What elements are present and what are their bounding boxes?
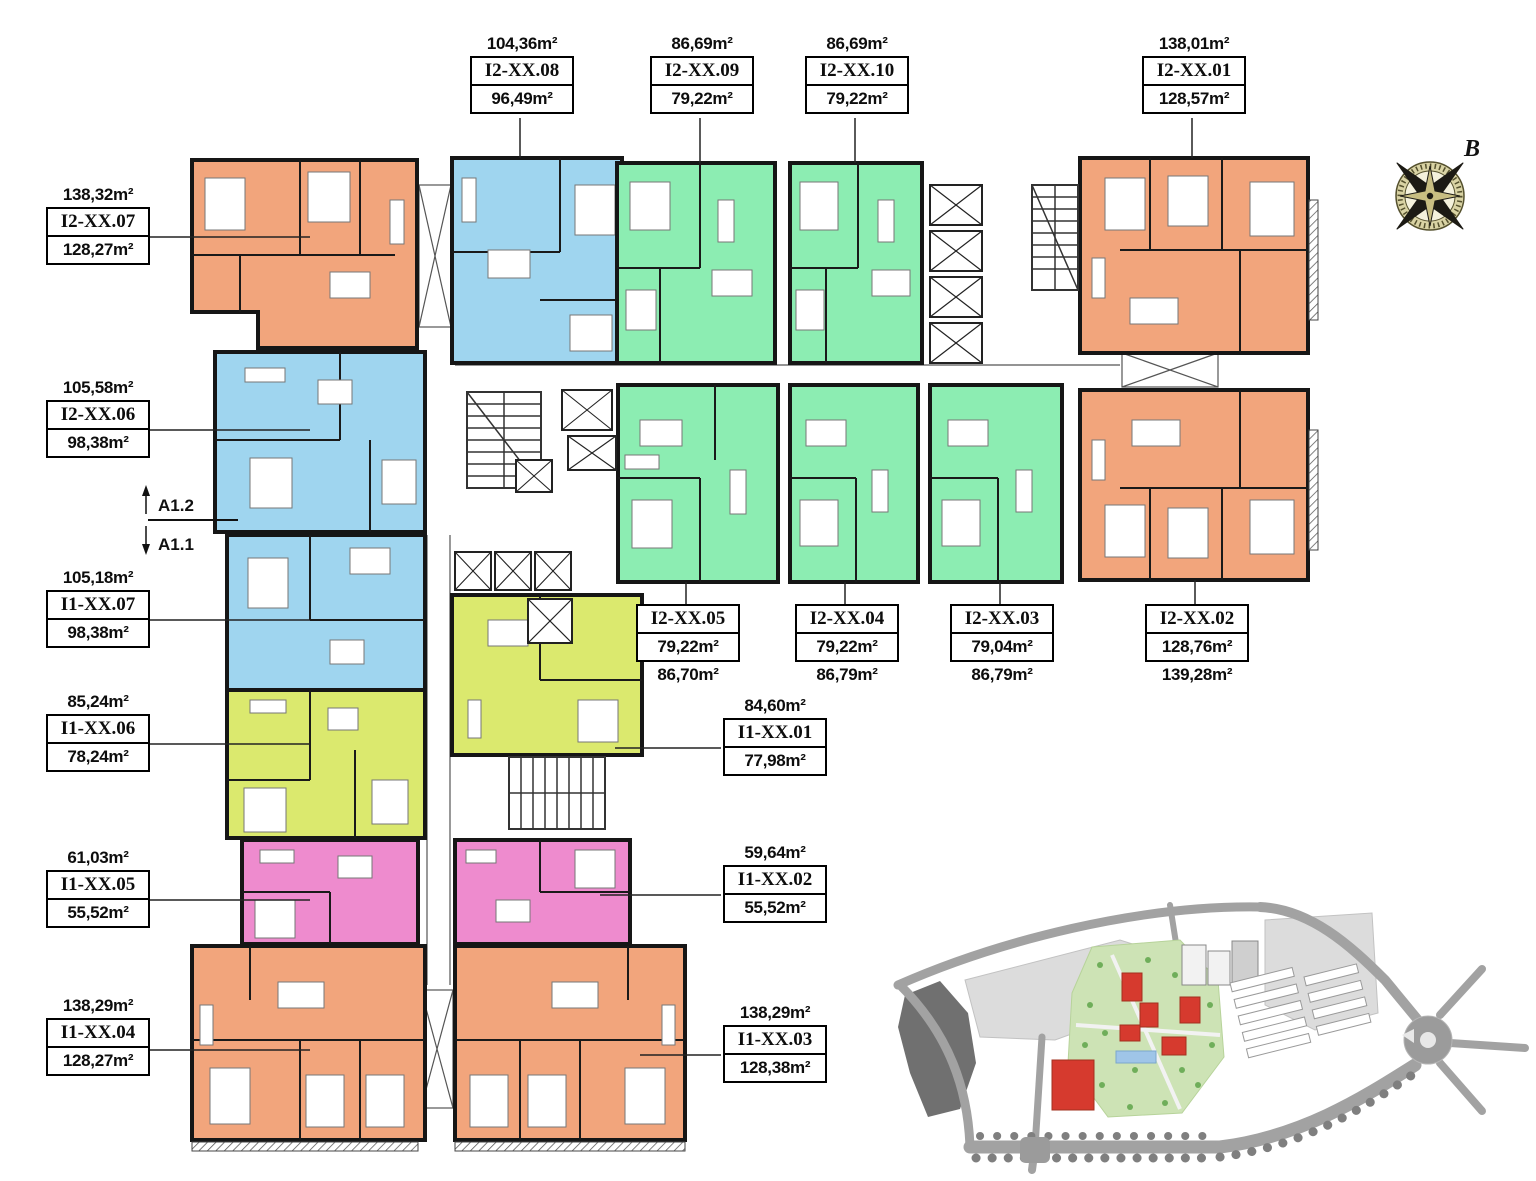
unit-area-net: 79,04m² — [952, 634, 1052, 660]
unit-area-gross: 84,60m² — [723, 696, 827, 716]
unit-label-i2-xx-07[interactable]: 138,32m² I2-XX.07 128,27m² — [46, 185, 150, 265]
unit-area-net: 128,27m² — [48, 1048, 148, 1074]
compass-rose: B — [1364, 130, 1497, 263]
unit-area-net: 98,38m² — [48, 620, 148, 646]
site-pool — [1116, 1051, 1156, 1063]
unit-area-net: 128,38m² — [725, 1055, 825, 1081]
unit-area-net: 55,52m² — [725, 895, 825, 921]
unit-id: I2-XX.10 — [807, 58, 907, 86]
unit-area-net: 128,76m² — [1147, 634, 1247, 660]
unit-area-gross: 86,69m² — [650, 34, 754, 54]
unit-id: I2-XX.09 — [652, 58, 752, 86]
unit-label-i2-xx-01[interactable]: 138,01m² I2-XX.01 128,57m² — [1142, 34, 1246, 114]
unit-area-net: 79,22m² — [797, 634, 897, 660]
unit-id: I2-XX.04 — [797, 606, 897, 634]
unit-i2-xx-01 — [1080, 158, 1308, 353]
unit-i1-xx-02 — [455, 840, 630, 944]
unit-i2-xx-05 — [618, 385, 778, 582]
unit-label-i1-xx-02[interactable]: 59,64m² I1-XX.02 55,52m² — [723, 843, 827, 923]
unit-area-gross: 86,69m² — [805, 34, 909, 54]
unit-area-gross: 138,32m² — [46, 185, 150, 205]
unit-area-gross: 138,29m² — [46, 996, 150, 1016]
unit-area-gross: 86,79m² — [950, 665, 1054, 685]
floor-plan-page: A1.2 A1.1 B — [0, 0, 1536, 1181]
site-junction — [1020, 1137, 1050, 1163]
unit-area-gross: 86,70m² — [636, 665, 740, 685]
unit-area-net: 79,22m² — [807, 86, 907, 112]
unit-i1-xx-01 — [452, 595, 642, 755]
core-mid-left — [455, 390, 616, 590]
unit-area-net: 79,22m² — [652, 86, 752, 112]
unit-id: I1-XX.03 — [725, 1027, 825, 1055]
unit-i2-xx-10 — [790, 163, 922, 363]
unit-area-gross: 138,01m² — [1142, 34, 1246, 54]
unit-id: I2-XX.06 — [48, 402, 148, 430]
unit-i2-xx-04 — [790, 385, 918, 582]
unit-label-i2-xx-09[interactable]: 86,69m² I2-XX.09 79,22m² — [650, 34, 754, 114]
stairs-top-right — [1032, 185, 1078, 290]
unit-area-net: 96,49m² — [472, 86, 572, 112]
unit-area-gross: 104,36m² — [470, 34, 574, 54]
site-map[interactable] — [898, 905, 1525, 1170]
unit-id: I2-XX.05 — [638, 606, 738, 634]
unit-id: I1-XX.06 — [48, 716, 148, 744]
unit-area-gross: 85,24m² — [46, 692, 150, 712]
unit-label-i2-xx-05[interactable]: I2-XX.05 79,22m² 86,70m² — [636, 604, 740, 685]
unit-i2-xx-09 — [617, 163, 775, 363]
unit-i2-xx-02 — [1080, 390, 1308, 580]
unit-area-net: 128,57m² — [1144, 86, 1244, 112]
section-label-lower: A1.1 — [158, 535, 194, 554]
unit-area-gross: 139,28m² — [1145, 665, 1249, 685]
unit-id: I2-XX.03 — [952, 606, 1052, 634]
unit-id: I2-XX.01 — [1144, 58, 1244, 86]
unit-i2-xx-03 — [930, 385, 1062, 582]
compass-north-label: B — [1463, 136, 1480, 162]
unit-label-i2-xx-04[interactable]: I2-XX.04 79,22m² 86,79m² — [795, 604, 899, 685]
section-label-upper: A1.2 — [158, 496, 194, 515]
unit-label-i2-xx-08[interactable]: 104,36m² I2-XX.08 96,49m² — [470, 34, 574, 114]
unit-label-i1-xx-03[interactable]: 138,29m² I1-XX.03 128,38m² — [723, 1003, 827, 1083]
unit-i2-xx-06 — [215, 352, 425, 532]
site-roundabout — [1402, 1016, 1452, 1064]
unit-id: I2-XX.08 — [472, 58, 572, 86]
unit-area-net: 79,22m² — [638, 634, 738, 660]
unit-id: I2-XX.07 — [48, 209, 148, 237]
unit-i1-xx-05 — [242, 840, 418, 944]
unit-label-i1-xx-01[interactable]: 84,60m² I1-XX.01 77,98m² — [723, 696, 827, 776]
stairs-bottom-center — [509, 757, 605, 829]
unit-area-net: 98,38m² — [48, 430, 148, 456]
unit-area-gross: 59,64m² — [723, 843, 827, 863]
unit-area-gross: 86,79m² — [795, 665, 899, 685]
elevator-shaft — [528, 599, 572, 643]
unit-id: I1-XX.04 — [48, 1020, 148, 1048]
unit-label-i2-xx-02[interactable]: I2-XX.02 128,76m² 139,28m² — [1145, 604, 1249, 685]
unit-i1-xx-06 — [227, 690, 425, 838]
unit-area-net: 78,24m² — [48, 744, 148, 770]
unit-label-i1-xx-07[interactable]: 105,18m² I1-XX.07 98,38m² — [46, 568, 150, 648]
unit-label-i2-xx-03[interactable]: I2-XX.03 79,04m² 86,79m² — [950, 604, 1054, 685]
unit-i2-xx-07 — [192, 160, 417, 348]
unit-i1-xx-07 — [227, 535, 425, 690]
unit-area-gross: 61,03m² — [46, 848, 150, 868]
unit-id: I1-XX.05 — [48, 872, 148, 900]
unit-area-gross: 105,18m² — [46, 568, 150, 588]
unit-area-net: 55,52m² — [48, 900, 148, 926]
unit-label-i2-xx-06[interactable]: 105,58m² I2-XX.06 98,38m² — [46, 378, 150, 458]
elevator-bank-top — [930, 185, 982, 363]
unit-label-i1-xx-05[interactable]: 61,03m² I1-XX.05 55,52m² — [46, 848, 150, 928]
unit-i2-xx-08 — [452, 158, 622, 363]
unit-area-gross: 105,58m² — [46, 378, 150, 398]
unit-label-i1-xx-04[interactable]: 138,29m² I1-XX.04 128,27m² — [46, 996, 150, 1076]
unit-id: I1-XX.01 — [725, 720, 825, 748]
unit-i1-xx-03 — [455, 946, 685, 1140]
unit-area-gross: 138,29m² — [723, 1003, 827, 1023]
unit-label-i2-xx-10[interactable]: 86,69m² I2-XX.10 79,22m² — [805, 34, 909, 114]
unit-id: I1-XX.07 — [48, 592, 148, 620]
unit-i1-xx-04 — [192, 946, 425, 1140]
unit-id: I1-XX.02 — [725, 867, 825, 895]
unit-label-i1-xx-06[interactable]: 85,24m² I1-XX.06 78,24m² — [46, 692, 150, 772]
unit-id: I2-XX.02 — [1147, 606, 1247, 634]
unit-area-net: 128,27m² — [48, 237, 148, 263]
unit-area-net: 77,98m² — [725, 748, 825, 774]
